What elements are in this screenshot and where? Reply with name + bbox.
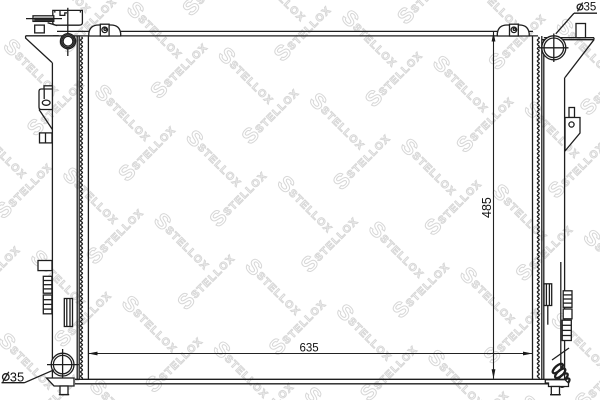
- svg-text:STELLOX: STELLOX: [12, 50, 61, 99]
- svg-text:STELLOX: STELLOX: [98, 390, 147, 400]
- svg-text:STELLOX: STELLOX: [318, 104, 367, 153]
- svg-text:STELLOX: STELLOX: [131, 307, 180, 356]
- svg-text:STELLOX: STELLOX: [254, 270, 303, 319]
- svg-text:STELLOX: STELLOX: [103, 96, 152, 145]
- svg-text:635: 635: [300, 343, 319, 355]
- svg-text:STELLOX: STELLOX: [442, 67, 491, 116]
- svg-text:STELLOX: STELLOX: [0, 133, 29, 182]
- svg-text:35: 35: [10, 369, 24, 384]
- svg-text:STELLOX: STELLOX: [409, 0, 458, 15]
- svg-text:STELLOX: STELLOX: [222, 353, 271, 400]
- svg-text:STELLOX: STELLOX: [592, 241, 600, 290]
- svg-text:485: 485: [480, 197, 494, 218]
- svg-text:STELLOX: STELLOX: [345, 315, 394, 364]
- svg-text:STELLOX: STELLOX: [437, 361, 486, 400]
- svg-text:STELLOX: STELLOX: [286, 187, 335, 236]
- svg-text:S: S: [514, 391, 540, 400]
- svg-text:STELLOX: STELLOX: [194, 0, 243, 7]
- svg-text:STELLOX: STELLOX: [377, 233, 426, 282]
- svg-text:STELLOX: STELLOX: [163, 224, 212, 273]
- svg-text:STELLOX: STELLOX: [0, 244, 23, 293]
- svg-text:STELLOX: STELLOX: [259, 0, 308, 24]
- svg-text:STELLOX: STELLOX: [195, 141, 244, 190]
- svg-text:STELLOX: STELLOX: [409, 150, 458, 199]
- svg-text:STELLOX: STELLOX: [136, 13, 185, 62]
- svg-text:35: 35: [584, 2, 597, 14]
- svg-text:STELLOX: STELLOX: [350, 21, 399, 70]
- svg-text:STELLOX: STELLOX: [227, 59, 276, 108]
